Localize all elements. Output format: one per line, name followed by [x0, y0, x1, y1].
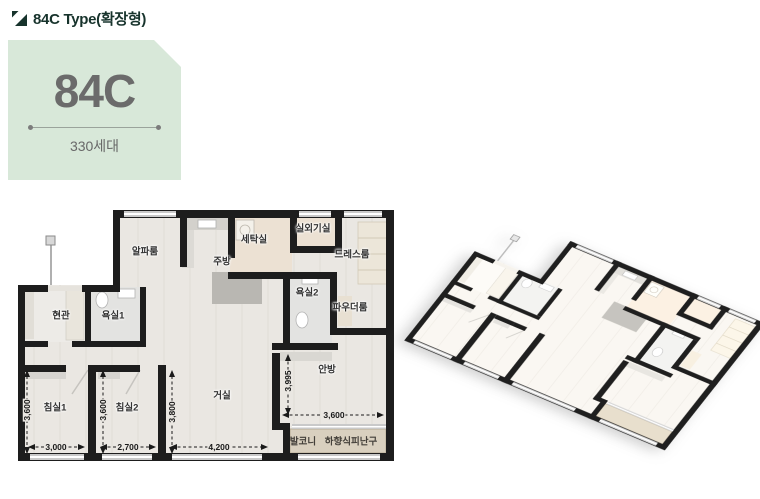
plan-structure	[18, 210, 394, 461]
plan-type-title: 84C Type(확장형)	[33, 8, 146, 29]
room-label-powder: 파우더룸	[333, 303, 368, 313]
room-label-bedroom2: 침실2	[116, 403, 139, 413]
divider-dot-left	[28, 125, 33, 130]
floorplan-3d-render	[399, 212, 760, 454]
room-label-laundry: 세탁실	[241, 235, 267, 245]
room-label-escape-hatch: 하향식피난구	[325, 437, 377, 447]
floorplan-3d-transform	[399, 212, 760, 454]
room-label-master: 안방	[318, 365, 335, 375]
divider-dot-right	[156, 125, 161, 130]
room-label-kitchen: 주방	[213, 257, 230, 267]
plan-type-header: 84C Type(확장형)	[12, 8, 146, 29]
floorplan-3d	[392, 204, 760, 462]
entry-marker	[46, 236, 55, 285]
room-label-bath1: 욕실1	[102, 311, 125, 321]
dim-living-width: 4,200	[207, 443, 230, 452]
room-label-bedroom1: 침실1	[44, 403, 67, 413]
households-label: 330세대	[8, 136, 181, 156]
unit-type-card: 84C 330세대	[8, 40, 181, 180]
room-label-balcony: 발코니	[290, 437, 316, 447]
dim-living-height: 3,800	[168, 400, 177, 423]
unit-type-label: 84C	[8, 68, 181, 114]
dim-master-width: 3,600	[322, 411, 345, 420]
dim-master-height: 3,995	[284, 369, 293, 392]
card-divider	[30, 127, 159, 128]
type-marker-icon	[12, 11, 27, 26]
dim-bedroom2-height: 3,600	[99, 398, 108, 421]
page: 84C Type(확장형) 84C 330세대	[0, 0, 760, 499]
dim-bedroom2-width: 2,700	[116, 443, 139, 452]
dim-bedroom1-width: 3,000	[44, 443, 67, 452]
room-label-living: 거실	[213, 391, 230, 401]
room-label-dressroom: 드레스룸	[335, 250, 370, 260]
dim-bedroom1-height: 3,600	[23, 398, 32, 421]
floorplan-2d: 알파룸 주방 세탁실 실외기실 드레스룸 욕실2 파우더룸 현관 욕실1 침실1…	[14, 210, 394, 468]
room-label-entrance: 현관	[52, 311, 69, 321]
room-label-alpha: 알파룸	[132, 247, 158, 257]
room-label-bath2: 욕실2	[296, 288, 319, 298]
room-label-outdoor-unit: 실외기실	[296, 224, 331, 234]
